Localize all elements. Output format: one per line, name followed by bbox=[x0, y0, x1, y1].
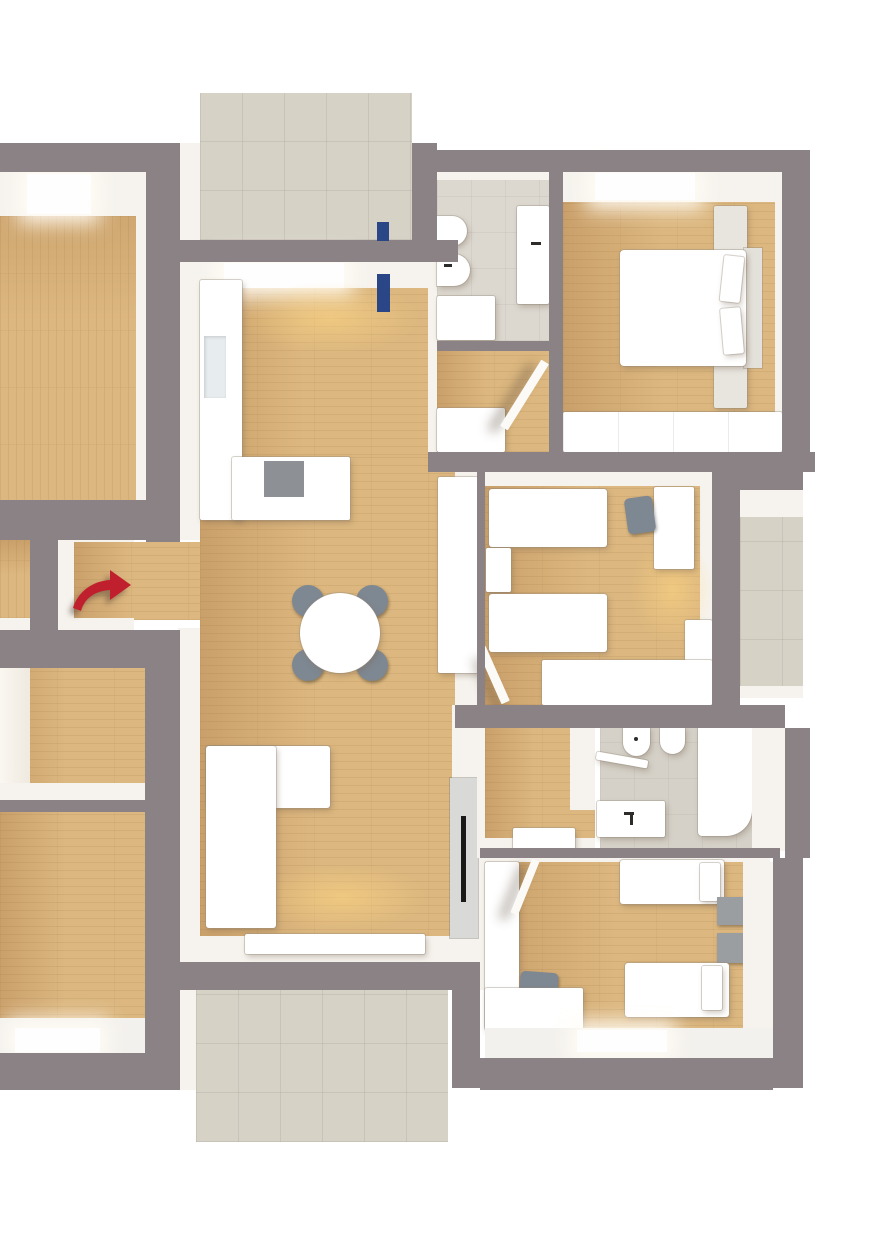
wall-balcony-east-top bbox=[740, 472, 803, 490]
entrance-arrow-path bbox=[73, 570, 131, 611]
kids-bed-north bbox=[489, 489, 607, 547]
wall-entry-left bbox=[30, 540, 58, 632]
bedroom-se-nightstand-1 bbox=[717, 897, 745, 925]
kids-dresser bbox=[542, 660, 712, 705]
wall-sw-bottom bbox=[0, 1053, 180, 1090]
wall-west-rooms-divider bbox=[0, 800, 145, 812]
kids-desk bbox=[654, 487, 694, 569]
bedroom-se-nightstand-2 bbox=[717, 933, 745, 963]
pillow-ne-2 bbox=[720, 307, 744, 355]
bathroom-north-top-wall bbox=[437, 172, 549, 180]
living-west-wall-upper bbox=[178, 262, 200, 540]
kitchen-sink-niche bbox=[204, 336, 226, 398]
wall-west-vertical-upper bbox=[146, 143, 180, 542]
nightstand-ne-north bbox=[714, 206, 747, 254]
wall-bathroom-south-east bbox=[785, 728, 810, 858]
wall-balcony-north-east bbox=[412, 143, 437, 262]
toilet-south bbox=[623, 726, 650, 756]
entrance-arrow-icon bbox=[70, 566, 134, 614]
bedroom-se-window-icon bbox=[577, 1030, 667, 1052]
nightstand-ne-south bbox=[714, 360, 747, 408]
bed-headboard-ne bbox=[744, 248, 762, 368]
wall-living-kids-divider bbox=[477, 452, 485, 705]
floor-plan-canvas bbox=[0, 0, 869, 1254]
room-stair-landing bbox=[0, 540, 30, 618]
bedroom-se-east-wall bbox=[743, 862, 773, 1028]
door-marker-balcony-icon bbox=[377, 222, 389, 241]
wall-entry-top bbox=[0, 500, 180, 540]
wall-living-south bbox=[178, 962, 480, 990]
hallway-north-cabinet bbox=[437, 408, 505, 452]
wall-hallway-north-east bbox=[549, 352, 563, 452]
toilet-south-flush-icon bbox=[634, 737, 638, 741]
tall-wardrobe-living bbox=[438, 477, 478, 673]
wall-bathroom-north-east bbox=[549, 172, 563, 352]
balcony-south-west-wall bbox=[180, 990, 196, 1090]
wall-se-bottom bbox=[480, 1058, 773, 1090]
bedroom-se-pillow-north bbox=[700, 863, 720, 901]
bedroom-se-desk bbox=[485, 988, 583, 1030]
wall-bathroom-south-bottom bbox=[480, 848, 780, 858]
bedroom-sw-window-icon bbox=[15, 1028, 100, 1052]
bedroom-ne-east-wall bbox=[775, 172, 782, 452]
wall-mid-horizontal bbox=[428, 452, 815, 472]
wall-se-east bbox=[773, 858, 803, 1088]
living-west-wall-lower bbox=[178, 628, 200, 962]
room-bedroom-west bbox=[0, 172, 146, 502]
kids-desk-chair bbox=[624, 495, 657, 535]
hallway-south-west-wall bbox=[477, 728, 485, 858]
bedroom-west-window-icon bbox=[27, 174, 91, 214]
bedroom-west-east-wall bbox=[136, 172, 146, 502]
living-window-icon bbox=[224, 263, 344, 288]
tv-screen bbox=[461, 816, 466, 902]
sofa-chaise-section bbox=[206, 746, 276, 928]
kids-north-wall bbox=[485, 472, 712, 486]
wall-kids-south bbox=[455, 705, 785, 728]
balcony-east-south-edge bbox=[740, 686, 803, 698]
room-west-small-south-wall bbox=[0, 783, 145, 800]
bidet-faucet-icon bbox=[444, 264, 452, 267]
room-balcony-south bbox=[196, 990, 448, 1142]
balcony-north-west-wall bbox=[178, 143, 200, 240]
room-balcony-north bbox=[200, 93, 412, 240]
hallway-south-east-wall bbox=[570, 728, 595, 810]
kids-nightstand bbox=[486, 548, 511, 592]
wall-ne-top bbox=[437, 150, 810, 172]
wall-east-outer-upper bbox=[782, 172, 810, 472]
bidet-south bbox=[660, 726, 685, 754]
landing-bottom-edge bbox=[0, 618, 30, 630]
living-east-wall-upper bbox=[428, 262, 437, 452]
room-west-small-west-wall bbox=[0, 668, 30, 800]
dining-table bbox=[300, 593, 380, 673]
bathroom-south-east-wall bbox=[752, 728, 785, 851]
washbasin-south-faucet-icon-2 bbox=[630, 815, 633, 825]
room-balcony-east bbox=[740, 517, 803, 689]
cooktop bbox=[264, 461, 304, 497]
door-marker-living-icon bbox=[377, 274, 390, 312]
bedroom-ne-window-icon bbox=[595, 173, 695, 200]
washbasin-faucet-icon bbox=[531, 242, 541, 245]
kids-bed-south bbox=[489, 594, 607, 652]
entry-frame-bottom bbox=[58, 618, 134, 630]
wall-balcony-south-east bbox=[452, 990, 480, 1088]
lowboard bbox=[245, 934, 425, 954]
wall-kids-east bbox=[712, 472, 740, 728]
shower-tray-north bbox=[437, 296, 495, 340]
bathtub-south bbox=[698, 726, 752, 836]
wall-west-vertical-lower bbox=[145, 630, 180, 1090]
washbasin-cabinet-north bbox=[517, 206, 549, 304]
bedroom-se-pillow-south bbox=[702, 966, 722, 1010]
wardrobe-ne bbox=[563, 412, 782, 452]
balcony-east-north-wall bbox=[740, 490, 803, 517]
wall-bathroom-north-south bbox=[437, 341, 549, 351]
